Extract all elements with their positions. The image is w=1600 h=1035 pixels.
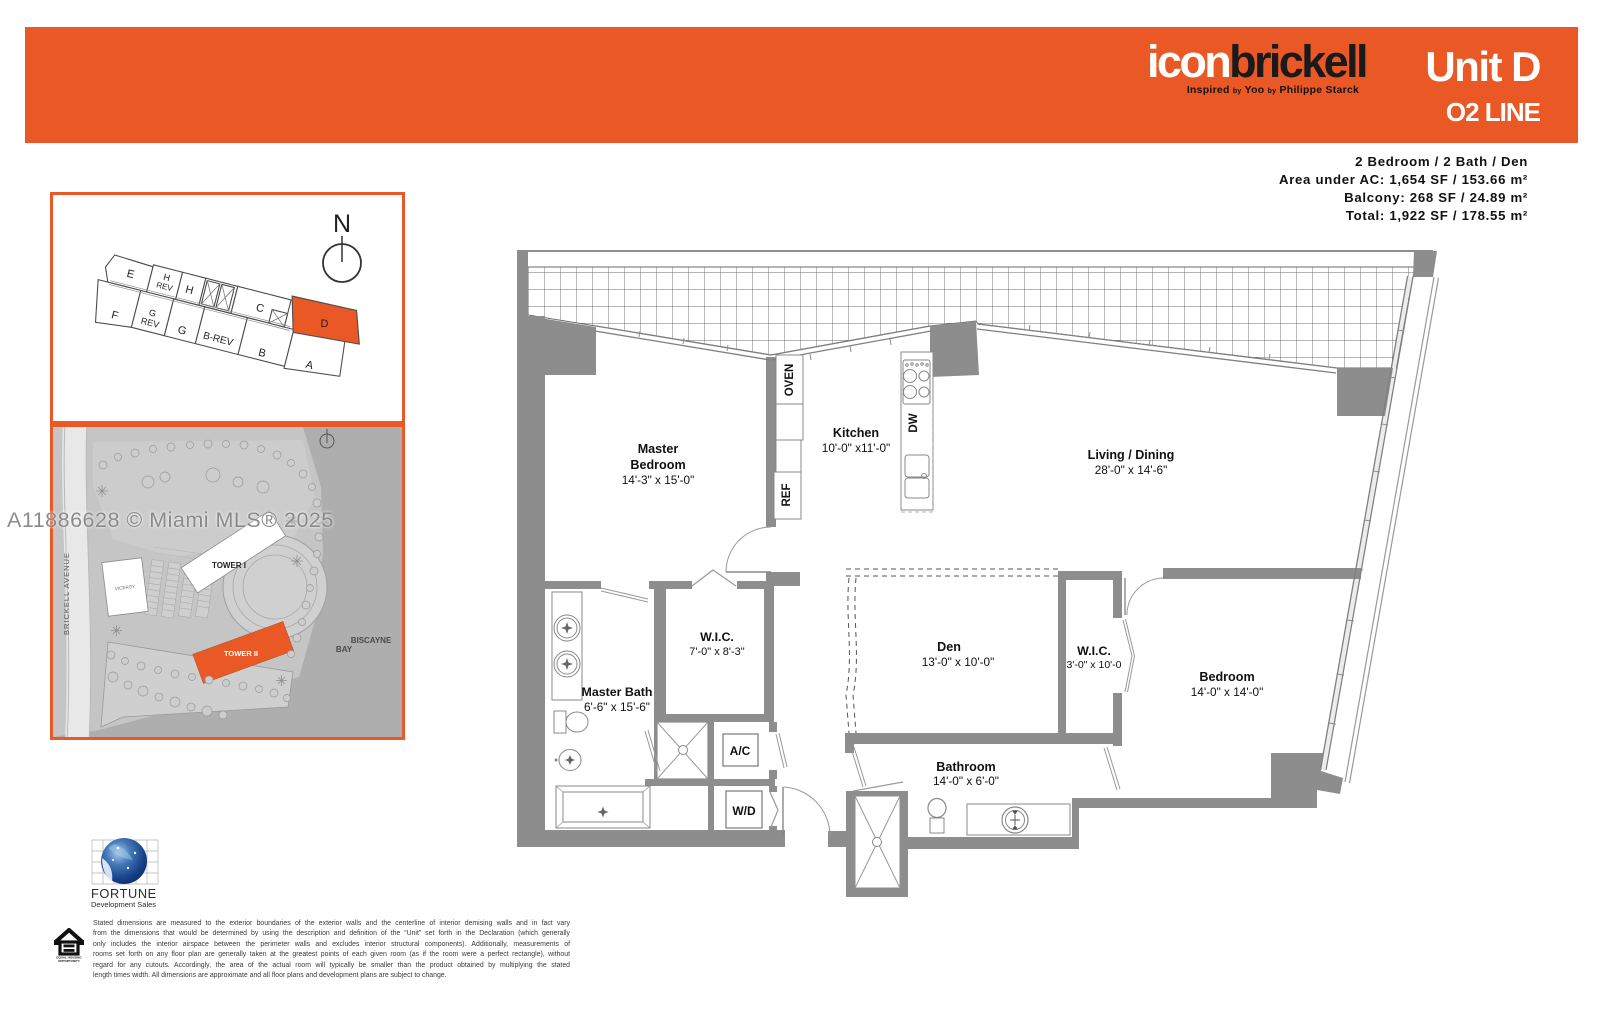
svg-text:Master: Master [638,442,679,456]
svg-text:TOWER II: TOWER II [224,649,258,658]
svg-text:BRICKELL AVENUE: BRICKELL AVENUE [62,552,71,635]
svg-text:D: D [321,318,329,330]
svg-text:Den: Den [937,640,961,654]
svg-text:Master Bath: Master Bath [582,685,653,699]
svg-text:N: N [333,210,351,238]
svg-text:Kitchen: Kitchen [833,426,879,440]
svg-text:Bathroom: Bathroom [936,760,995,774]
svg-text:14'-3" x 15'-0": 14'-3" x 15'-0" [622,473,695,487]
svg-text:28'-0" x 14'-6": 28'-0" x 14'-6" [1095,463,1168,477]
svg-text:W.I.C.: W.I.C. [1077,644,1111,658]
svg-text:W/D: W/D [732,804,756,818]
svg-text:10'-0" x11'-0": 10'-0" x11'-0" [822,441,890,455]
svg-text:Development Sales: Development Sales [91,900,156,909]
svg-text:Bedroom: Bedroom [1199,670,1254,684]
svg-text:14'-0" x 6'-0": 14'-0" x 6'-0" [933,774,999,788]
svg-text:Living / Dining: Living / Dining [1088,448,1175,462]
svg-text:OPPORTUNITY: OPPORTUNITY [58,959,80,963]
svg-text:7'-0" x 8'-3": 7'-0" x 8'-3" [689,646,745,658]
svg-text:W.I.C.: W.I.C. [700,630,734,644]
svg-text:3'-0" x 10'-0: 3'-0" x 10'-0 [1066,659,1121,671]
svg-text:DW: DW [908,413,920,432]
svg-text:TOWER I: TOWER I [212,561,246,570]
svg-text:N: N [324,427,329,429]
svg-text:A/C: A/C [730,744,751,758]
svg-text:REF: REF [781,484,793,507]
svg-text:14'-0" x 14'-0": 14'-0" x 14'-0" [1191,685,1264,699]
svg-text:6'-6" x 15'-6": 6'-6" x 15'-6" [584,700,650,714]
svg-text:FORTUNE: FORTUNE [91,886,157,901]
svg-text:BAY: BAY [336,645,353,654]
svg-text:OVEN: OVEN [784,364,796,397]
svg-text:13'-0" x 10'-0": 13'-0" x 10'-0" [922,655,995,669]
svg-text:BISCAYNE: BISCAYNE [351,636,392,645]
svg-text:Bedroom: Bedroom [630,458,685,472]
